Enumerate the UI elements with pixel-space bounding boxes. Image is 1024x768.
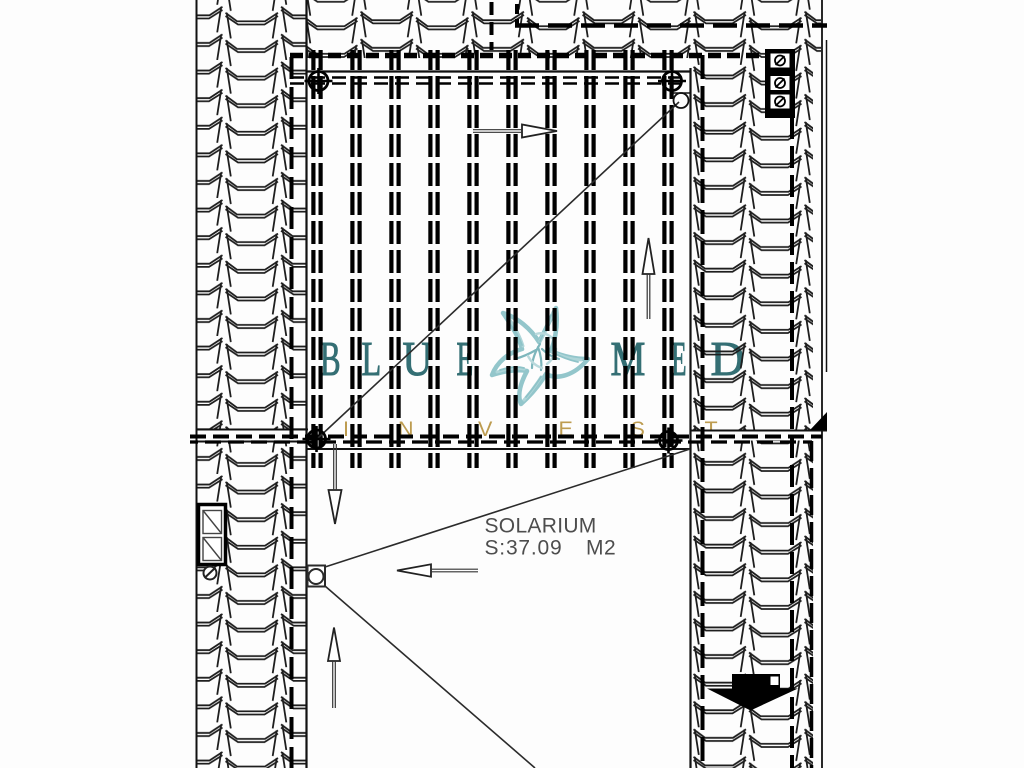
svg-text:U: U (403, 332, 433, 386)
svg-text:S:37.09: S:37.09 (485, 537, 563, 560)
svg-text:B: B (320, 332, 341, 386)
svg-text:L: L (362, 331, 382, 385)
svg-text:M: M (611, 331, 646, 386)
svg-text:M2: M2 (586, 537, 616, 560)
svg-text:SOLARIUM: SOLARIUM (485, 515, 597, 538)
svg-text:E: E (672, 332, 687, 386)
